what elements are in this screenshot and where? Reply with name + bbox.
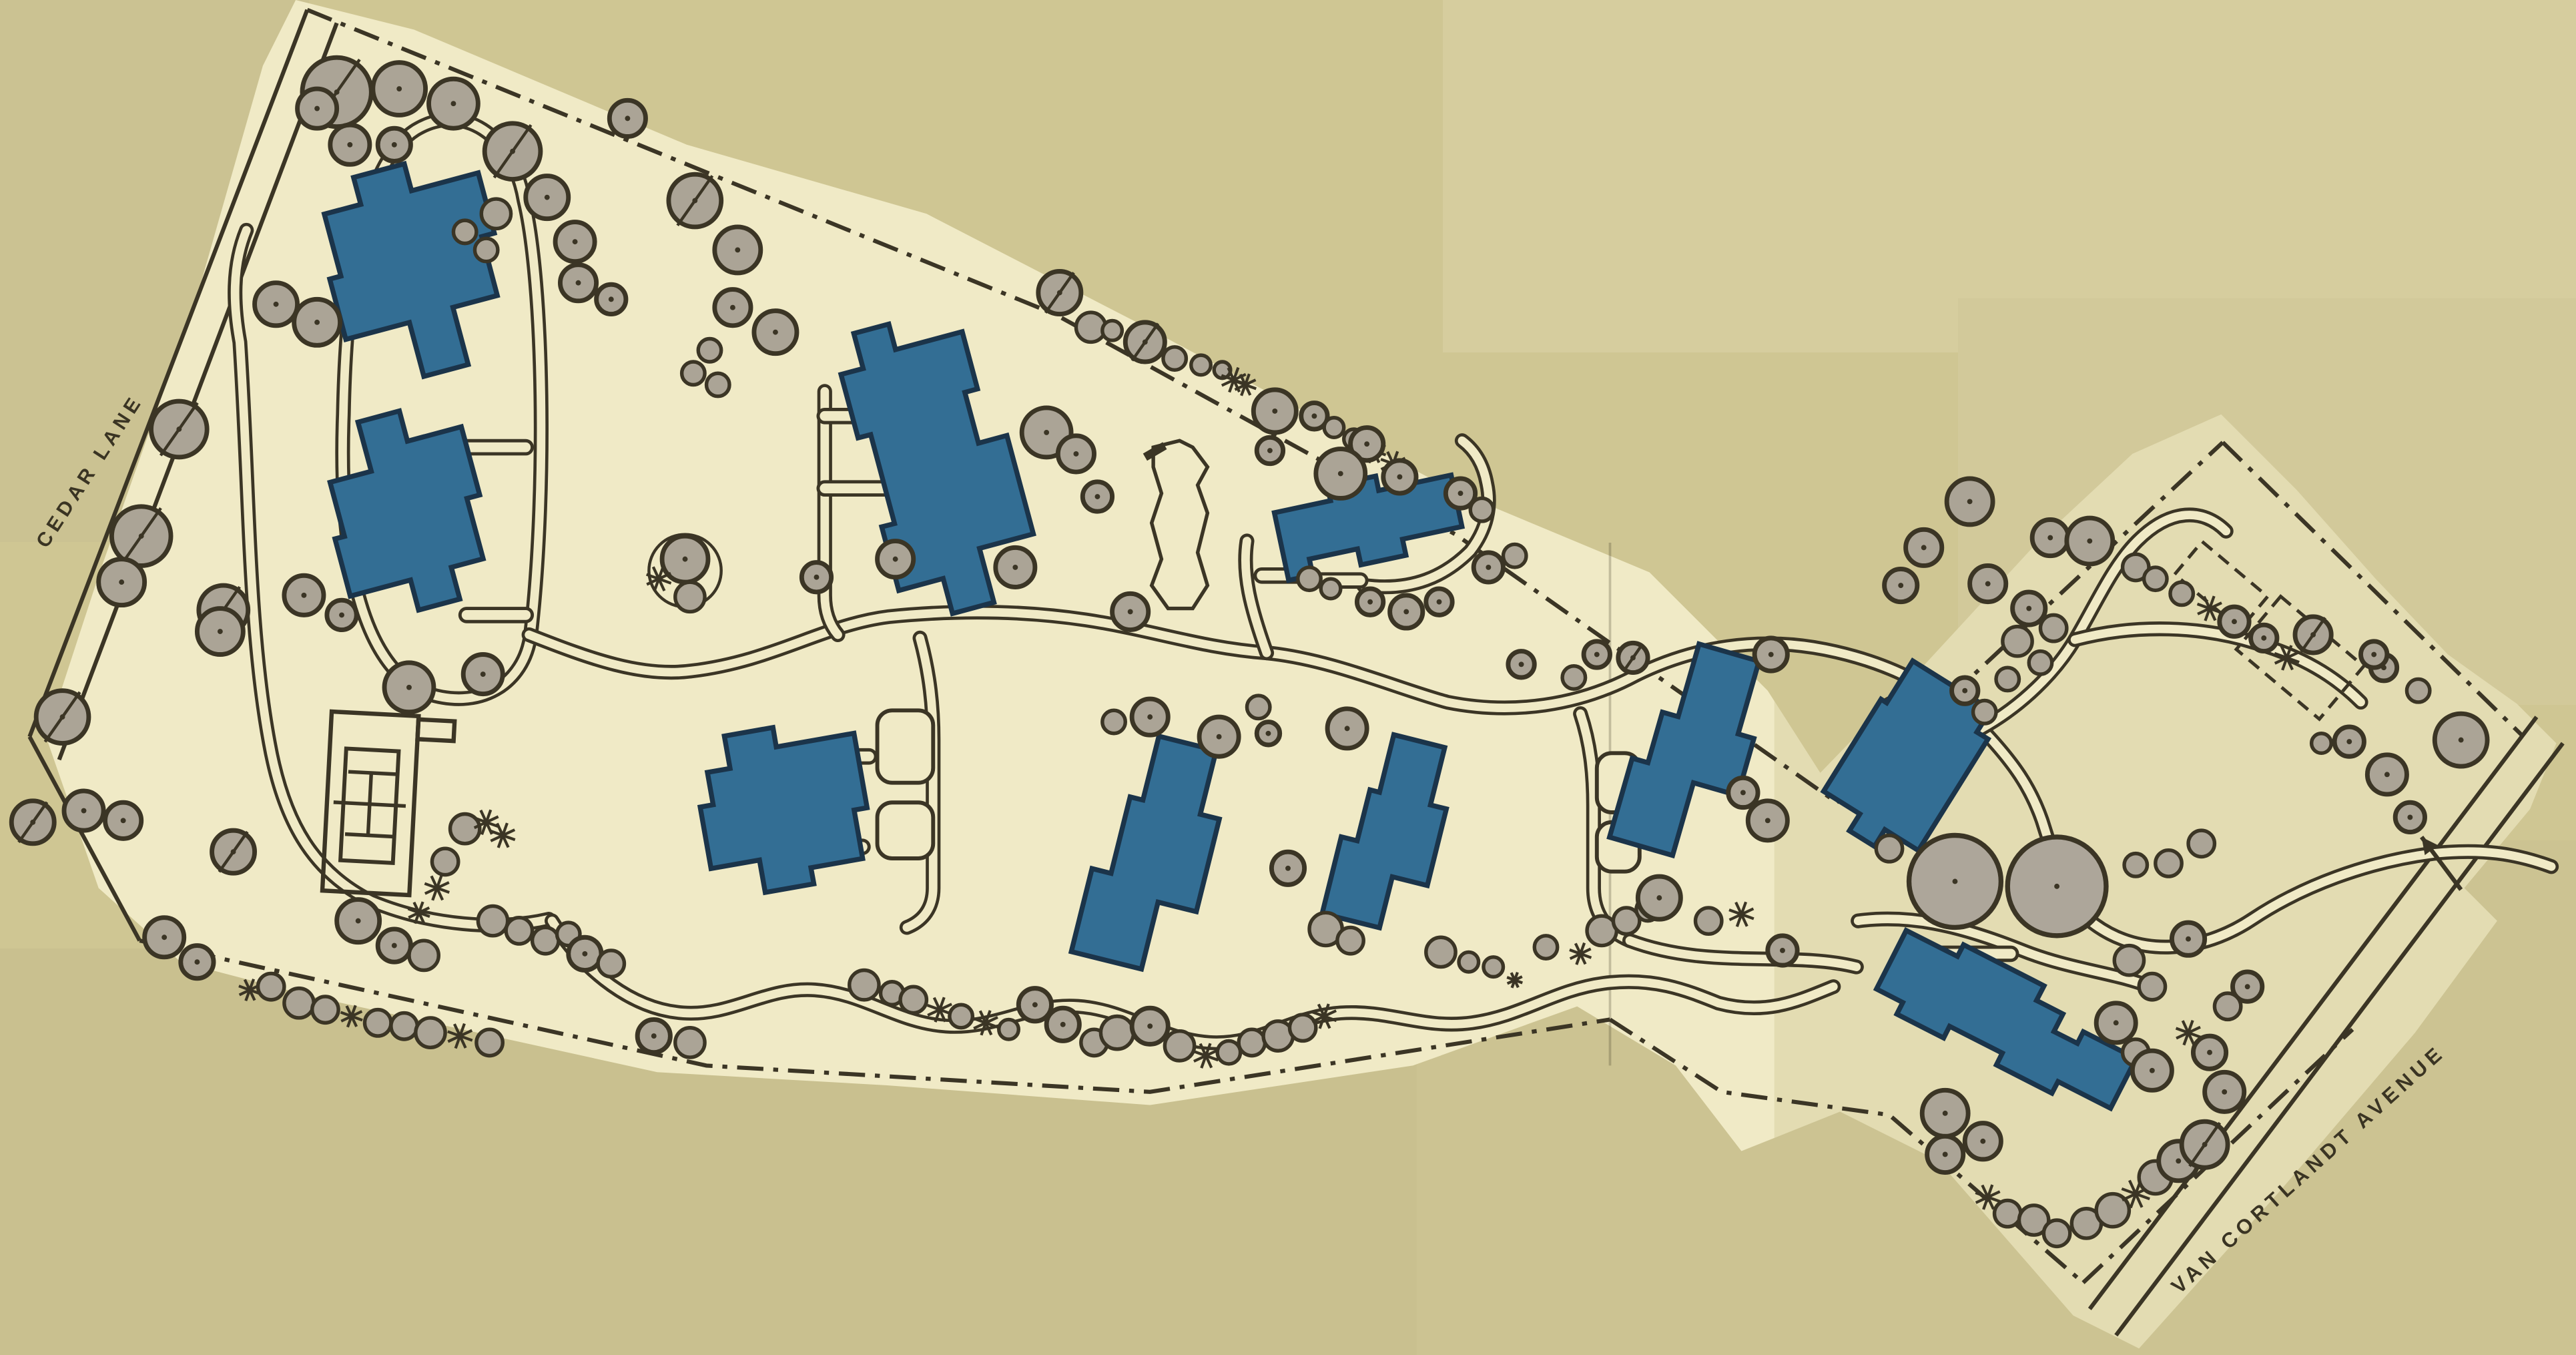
shrub-icon: [474, 238, 497, 261]
shrub-icon: [453, 220, 476, 243]
tree-center-dot: [1765, 818, 1770, 823]
tree-center-dot: [480, 671, 486, 677]
tree-center-dot: [2150, 1068, 2155, 1073]
site-plan-drawing: [0, 0, 2576, 1355]
shrub-icon: [432, 848, 458, 874]
shrub-icon: [2144, 567, 2167, 590]
tree-center-dot: [1943, 1111, 1948, 1116]
tree-center-dot: [2176, 1158, 2181, 1163]
tree-center-dot: [1898, 583, 1903, 588]
shrub-icon: [1470, 498, 1493, 521]
shrub-icon: [1996, 667, 2019, 690]
tree-center-dot: [1364, 441, 1369, 447]
tree-center-dot: [1266, 731, 1271, 736]
tree-center-dot: [2261, 635, 2266, 641]
tree-center-dot: [274, 302, 279, 307]
shrub-icon: [312, 997, 338, 1023]
tree-center-dot: [576, 280, 581, 286]
shrub-icon: [1876, 836, 1902, 862]
tree-center-dot: [1147, 1023, 1153, 1029]
tree-center-dot: [1128, 609, 1133, 615]
tree-center-dot: [2087, 539, 2092, 544]
tree-center-dot: [2054, 884, 2059, 889]
shrub-icon: [682, 362, 705, 384]
tree-center-dot: [1060, 1022, 1066, 1027]
shrub-icon: [1503, 544, 1526, 567]
tree-center-dot: [773, 330, 778, 335]
tree-center-dot: [347, 142, 352, 148]
tree-center-dot: [301, 593, 306, 598]
tree-center-dot: [2047, 535, 2053, 541]
shrub-icon: [2170, 582, 2193, 605]
shrub-icon: [481, 199, 511, 228]
tree-center-dot: [392, 142, 397, 148]
shrub-icon: [1324, 418, 1344, 438]
tree-center-dot: [1458, 491, 1464, 496]
tree-center-dot: [162, 934, 167, 940]
tree-center-dot: [1953, 879, 1958, 884]
shrub-icon: [950, 1005, 972, 1027]
shrub-icon: [1337, 927, 1363, 953]
tree-center-dot: [1967, 499, 1973, 504]
tree-center-dot: [2371, 652, 2376, 657]
shrub-icon: [1191, 355, 1211, 375]
tree-center-dot: [1437, 599, 1442, 605]
tree-center-dot: [1780, 948, 1785, 953]
shrub-icon: [2124, 854, 2147, 876]
evergreen-icon: [341, 1005, 362, 1027]
shrub-icon: [2040, 615, 2066, 641]
tree-center-dot: [2186, 936, 2191, 942]
shrub-icon: [2043, 1220, 2069, 1246]
tree-center-dot: [1367, 599, 1373, 605]
tree-center-dot: [1594, 652, 1600, 657]
tree-center-dot: [218, 629, 223, 634]
tree-center-dot: [1311, 413, 1317, 419]
shrub-icon: [1321, 579, 1341, 599]
tree-center-dot: [2384, 772, 2390, 777]
shrub-icon: [2214, 993, 2240, 1019]
shrub-icon: [1298, 567, 1321, 590]
tree-center-dot: [625, 115, 630, 121]
tree-center-dot: [194, 959, 200, 965]
shrub-icon: [258, 973, 284, 999]
tree-center-dot: [609, 296, 614, 302]
shrub-icon: [2188, 830, 2214, 856]
tree-center-dot: [1267, 448, 1273, 453]
tree-center-dot: [1044, 430, 1049, 435]
tree-center-dot: [1032, 1002, 1038, 1007]
tree-center-dot: [1338, 471, 1343, 477]
tree-center-dot: [735, 248, 740, 253]
tree-center-dot: [1962, 688, 1967, 694]
tree-center-dot: [1486, 565, 1491, 570]
tree-center-dot: [356, 918, 361, 924]
tree-center-dot: [2346, 739, 2352, 744]
shrub-icon: [1289, 1015, 1315, 1041]
site-plan-scan: CEDAR LANE VAN CORTLANDT AVENUE: [0, 0, 2576, 1355]
tree-center-dot: [1272, 409, 1277, 414]
shrub-icon: [533, 927, 559, 953]
tree-center-dot: [2222, 1089, 2227, 1095]
tree-center-dot: [314, 320, 320, 325]
shrub-icon: [1239, 1029, 1265, 1055]
shrub-icon: [1484, 957, 1504, 977]
shrub-icon: [284, 989, 314, 1018]
tree-center-dot: [2245, 984, 2250, 989]
shrub-icon: [409, 940, 438, 970]
shrub-icon: [1426, 937, 1456, 967]
tree-center-dot: [392, 943, 397, 948]
shrub-icon: [2156, 850, 2182, 876]
shrub-icon: [1165, 1031, 1194, 1061]
tree-center-dot: [1397, 475, 1402, 480]
tree-center-dot: [1740, 790, 1746, 796]
tree-center-dot: [1217, 734, 1222, 740]
tree-center-dot: [1073, 451, 1078, 457]
tree-center-dot: [314, 106, 320, 111]
tree-center-dot: [1980, 1139, 1985, 1144]
shrub-icon: [2312, 734, 2332, 754]
shrub-icon: [476, 1029, 503, 1055]
tree-center-dot: [406, 685, 412, 690]
shrub-icon: [900, 987, 926, 1013]
tree-center-dot: [683, 557, 688, 562]
tree-center-dot: [1345, 726, 1350, 731]
shrub-icon: [506, 918, 532, 944]
tree-center-dot: [119, 579, 124, 585]
shrub-icon: [1459, 952, 1479, 972]
tree-center-dot: [1656, 895, 1662, 900]
tree-center-dot: [573, 239, 578, 244]
shrub-icon: [698, 339, 721, 362]
tree-center-dot: [2232, 619, 2237, 624]
tree-center-dot: [1012, 565, 1018, 570]
tree-center-dot: [1985, 581, 1991, 587]
shrub-icon: [1102, 710, 1125, 733]
tree-center-dot: [2114, 1020, 2119, 1025]
tree-center-dot: [814, 575, 820, 580]
shrub-icon: [365, 1010, 391, 1036]
shrub-icon: [707, 373, 729, 396]
shrub-icon: [2139, 973, 2165, 999]
tree-center-dot: [1943, 1152, 1948, 1157]
shrub-icon: [1995, 1200, 2021, 1226]
shrub-icon: [1163, 347, 1186, 370]
tree-center-dot: [396, 86, 402, 91]
tree-center-dot: [339, 612, 344, 617]
tree-center-dot: [1921, 545, 1927, 550]
parking-bay: [878, 802, 934, 858]
shrub-icon: [1102, 320, 1122, 340]
shrub-icon: [2029, 651, 2051, 674]
shrub-icon: [1217, 1041, 1240, 1063]
shrub-icon: [999, 1019, 1019, 1039]
tree-center-dot: [1095, 494, 1100, 499]
tree-center-dot: [451, 101, 456, 106]
shrub-icon: [478, 906, 507, 935]
shrub-icon: [675, 1028, 705, 1057]
tree-center-dot: [545, 195, 550, 200]
tree-center-dot: [1285, 866, 1291, 871]
shrub-icon: [1247, 696, 1269, 718]
shrub-icon: [850, 971, 879, 1000]
tree-center-dot: [1768, 652, 1774, 657]
tree-center-dot: [893, 557, 898, 562]
tree-center-dot: [1519, 661, 1524, 667]
shrub-icon: [1534, 936, 1557, 959]
shrub-icon: [1973, 700, 1996, 723]
shrub-icon: [2406, 679, 2429, 702]
tree-center-dot: [2026, 606, 2031, 611]
tree-center-dot: [651, 1033, 657, 1039]
shrub-icon: [598, 951, 624, 977]
tree-center-dot: [1147, 714, 1153, 720]
shrub-icon: [2003, 627, 2032, 656]
tree-center-dot: [2407, 814, 2412, 820]
tree-center-dot: [2207, 1050, 2212, 1055]
shrub-icon: [675, 582, 705, 611]
tree-center-dot: [121, 818, 126, 823]
tree-center-dot: [730, 305, 735, 310]
shrub-icon: [1562, 666, 1585, 689]
shrub-icon: [391, 1013, 417, 1039]
shrub-icon: [1100, 1017, 1133, 1049]
tree-center-dot: [81, 808, 87, 814]
shrub-icon: [2114, 946, 2144, 975]
shrub-icon: [1696, 908, 1722, 934]
tree-center-dot: [2459, 738, 2464, 743]
parking-bay: [878, 710, 934, 782]
tree-center-dot: [582, 951, 587, 957]
shrub-icon: [416, 1018, 445, 1047]
tree-center-dot: [1403, 609, 1409, 615]
